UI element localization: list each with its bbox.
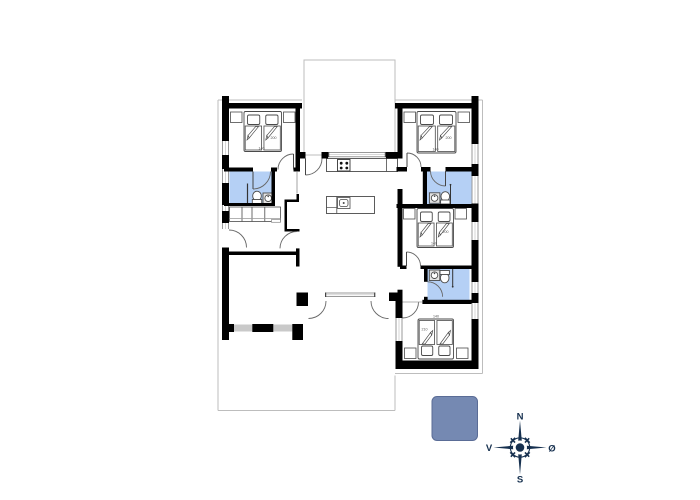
svg-text:200: 200 bbox=[446, 136, 452, 140]
svg-text:140: 140 bbox=[433, 148, 439, 152]
svg-text:V: V bbox=[486, 443, 493, 454]
svg-text:140: 140 bbox=[433, 315, 439, 319]
svg-text:S: S bbox=[517, 475, 523, 486]
svg-text:200: 200 bbox=[443, 230, 449, 234]
svg-text:N: N bbox=[517, 412, 524, 423]
svg-text:140: 140 bbox=[431, 242, 437, 246]
svg-text:Ø: Ø bbox=[548, 444, 555, 455]
svg-text:200: 200 bbox=[271, 136, 277, 140]
svg-text:210: 210 bbox=[422, 328, 428, 332]
svg-text:140: 140 bbox=[259, 147, 265, 151]
